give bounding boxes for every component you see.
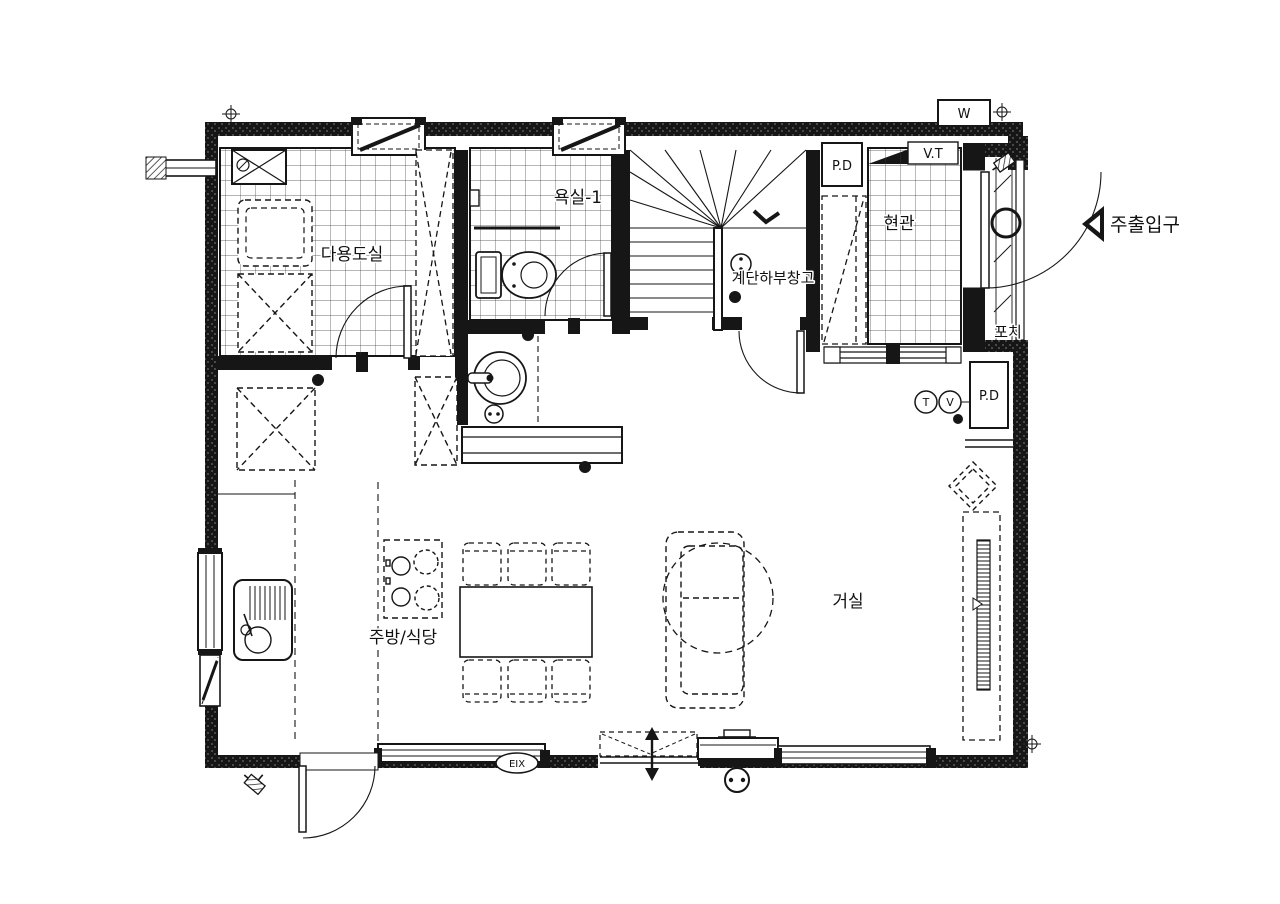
utility-cabinet-box — [238, 274, 312, 352]
stair-winders — [630, 150, 806, 228]
chair — [463, 660, 501, 702]
marker-top-right — [993, 103, 1011, 121]
outlet-living — [725, 768, 749, 792]
hose-bib-yard — [240, 766, 269, 795]
tv-console — [963, 512, 1000, 740]
left-wall-pipe — [146, 157, 216, 179]
sofa — [666, 532, 744, 708]
chair — [552, 660, 590, 702]
label-tel-outlet: T — [922, 396, 930, 409]
entry-fixtures — [822, 196, 866, 344]
label-entrance-hall: 현관 — [883, 214, 914, 234]
label-fixture-tag: EIX — [509, 759, 525, 770]
label-main-entrance: 주출입구 — [1110, 214, 1180, 236]
label-understair-storage: 계단하부창고 — [732, 269, 815, 287]
dining-table — [460, 587, 592, 657]
chair — [552, 543, 590, 585]
floor-plan-drawing: 다용도실 욕실-1 계단하부창고 현관 포치 주방/식당 거실 P.D P.D … — [0, 0, 1280, 904]
stair-center-wall — [714, 228, 722, 330]
outlet-vanity — [485, 405, 503, 423]
label-tv-outlet: V — [946, 396, 954, 409]
stair-south-stub-left — [630, 317, 648, 330]
label-porch: 포치 — [994, 323, 1022, 341]
main-entrance-door — [963, 170, 1101, 288]
porch-edge-rail — [1016, 160, 1024, 340]
bath-east-wall — [612, 150, 630, 334]
bottom-sliding-door — [598, 727, 700, 781]
chair — [508, 543, 546, 585]
staircase — [630, 150, 806, 330]
toilet — [476, 252, 556, 298]
storage-door — [739, 331, 804, 393]
kitchen-back-door — [299, 753, 378, 838]
pantry-space — [415, 377, 457, 465]
stove — [384, 540, 442, 618]
plant-stand — [949, 462, 997, 510]
top-window-1 — [352, 118, 425, 155]
label-pd-right: P.D — [979, 389, 999, 404]
storage-door-jamb — [800, 317, 820, 330]
left-awning-window — [200, 655, 220, 706]
bath-south-wall — [468, 320, 545, 334]
hall-bench — [462, 427, 622, 463]
washbasin — [468, 352, 526, 404]
chair — [463, 543, 501, 585]
main-entrance-arrow-icon — [1082, 206, 1104, 242]
marker-top-left — [222, 105, 240, 123]
left-window — [198, 548, 222, 655]
label-kitchen-dining: 주방/식당 — [369, 628, 438, 648]
chair — [508, 660, 546, 702]
stair-direction-arrow — [754, 211, 779, 222]
entry-door-jamb-bottom — [963, 288, 985, 352]
entry-door-jamb-top — [963, 143, 985, 170]
utility-south-wall-left — [218, 356, 332, 370]
fridge-space — [237, 388, 315, 470]
tall-cabinet — [416, 150, 453, 356]
top-window-2 — [553, 118, 625, 155]
label-bathroom1: 욕실-1 — [554, 188, 602, 208]
porch-wall-bottom — [985, 340, 1028, 352]
tv-screen — [977, 540, 990, 690]
label-pd-top: P.D — [832, 159, 852, 174]
kitchen-sink — [234, 580, 292, 660]
wall-right — [1013, 352, 1028, 768]
vanity-area — [462, 336, 622, 463]
label-water-meter: W — [958, 107, 971, 122]
bottom-window-3 — [774, 746, 936, 768]
washing-machine — [238, 200, 312, 266]
label-living-room: 거실 — [832, 592, 863, 612]
entry-floor — [868, 148, 961, 344]
floor-plan-page: 다용도실 욕실-1 계단하부창고 현관 포치 주방/식당 거실 P.D P.D … — [0, 0, 1280, 904]
bottom-window-2 — [698, 730, 778, 766]
label-utility: 다용도실 — [321, 245, 384, 265]
label-vent-terminal: V.T — [923, 147, 942, 162]
shoe-cabinet — [822, 196, 866, 344]
soap-holder — [470, 190, 479, 206]
boiler — [232, 150, 286, 184]
